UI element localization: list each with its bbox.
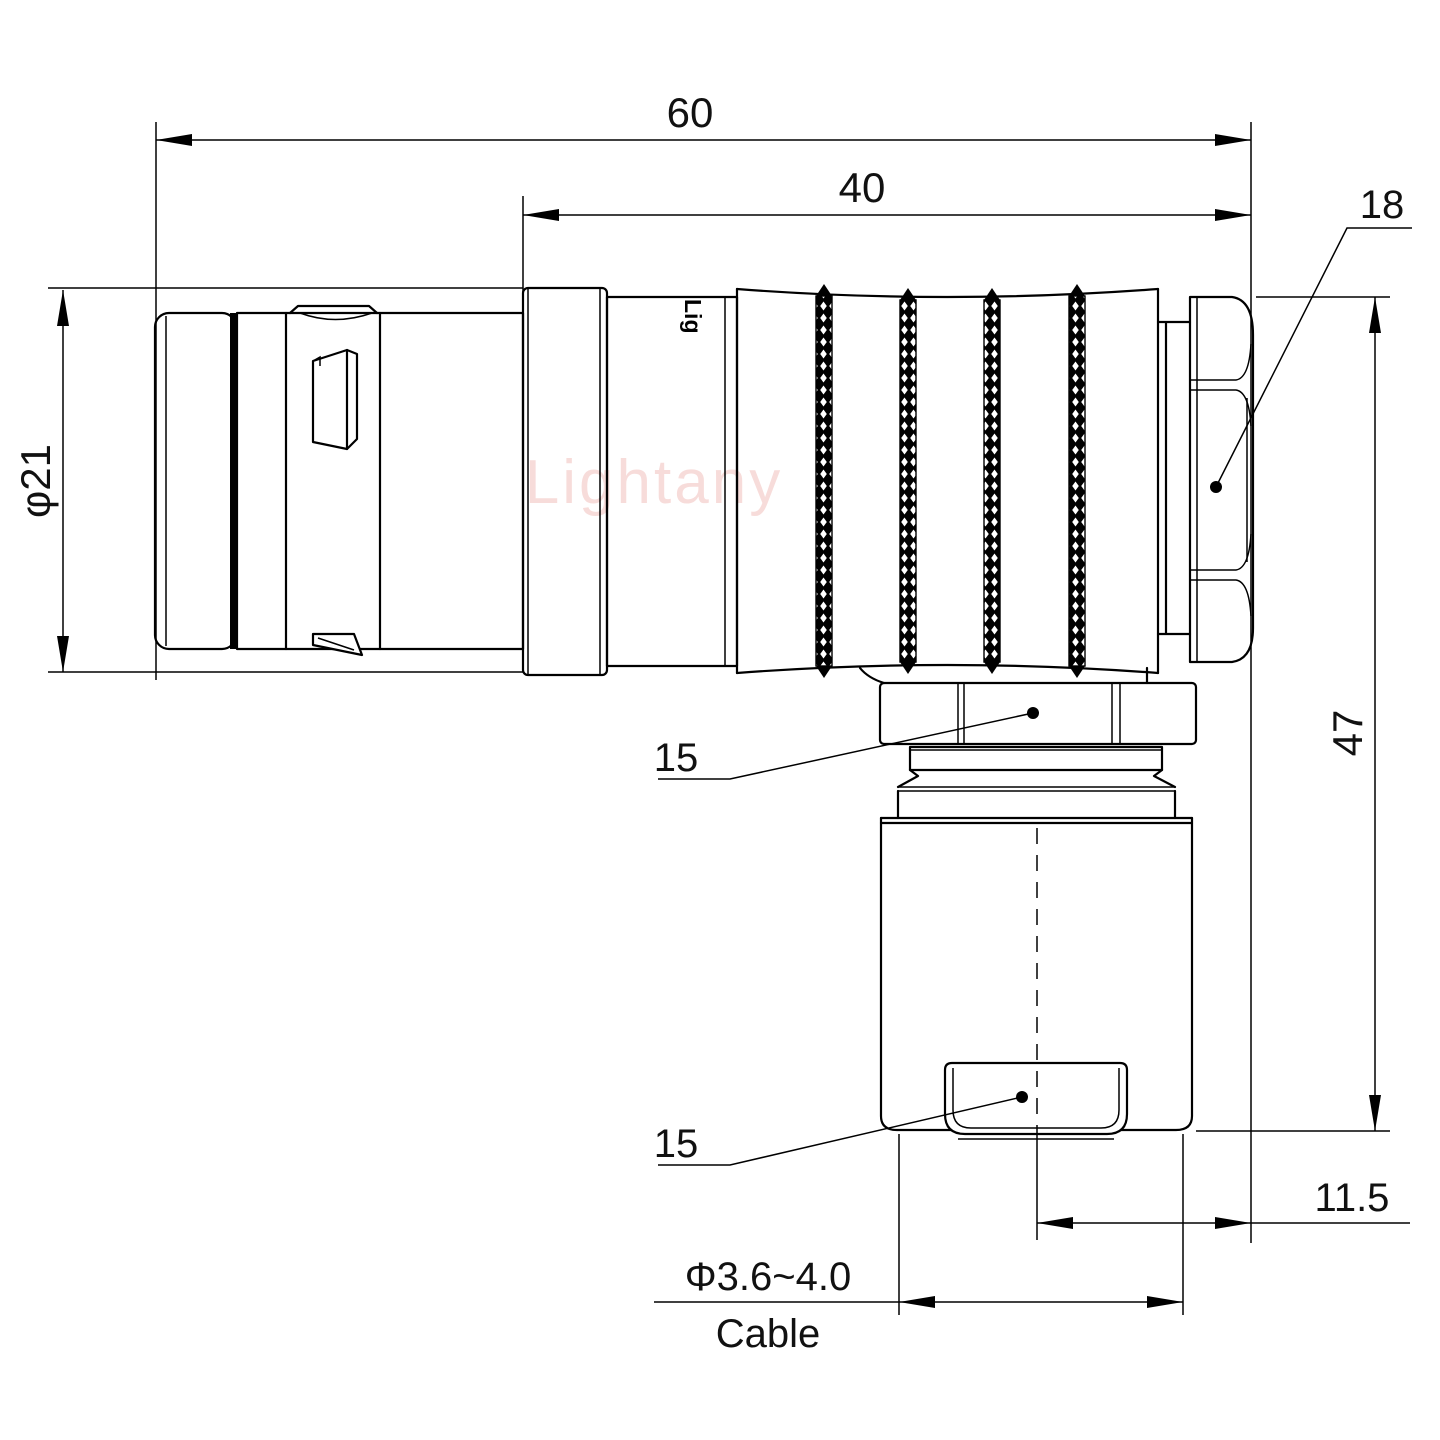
knurl-band (1069, 296, 1085, 666)
dim-phi21-label: φ21 (12, 444, 59, 518)
dim-15-elbow-label: 15 (654, 736, 699, 780)
knurl-band (816, 296, 832, 666)
connector-dimension-drawing: Lightany Lig (0, 0, 1440, 1440)
cable-clamp-tab (945, 1063, 1127, 1134)
knurl-band (900, 300, 916, 662)
dim-15-clamp-label: 15 (654, 1122, 699, 1166)
knurl-band (984, 300, 1000, 662)
dim-40-label: 40 (839, 164, 886, 211)
body-logo-text: Lig (680, 299, 706, 334)
dim-18-leader-dot (1210, 481, 1222, 493)
dim-cable-word-label: Cable (716, 1312, 821, 1356)
dim-cable-diameter-label: Φ3.6~4.0 (685, 1255, 851, 1299)
dim-15-elbow-dot (1027, 707, 1039, 719)
dim-11-5-label: 11.5 (1315, 1176, 1390, 1220)
dim-15-clamp-dot (1016, 1091, 1028, 1103)
dim-47-label: 47 (1324, 710, 1371, 757)
technical-drawing-page: Lightany Lig (0, 0, 1440, 1440)
dim-60-label: 60 (667, 89, 714, 136)
watermark-text: Lightany (525, 448, 783, 517)
dim-18-label: 18 (1360, 183, 1405, 227)
